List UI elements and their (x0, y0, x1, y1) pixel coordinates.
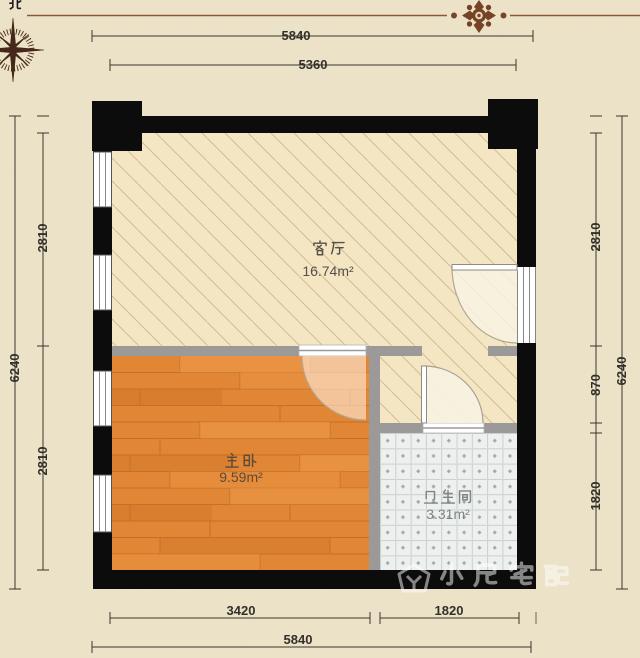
svg-text:3.31m²: 3.31m² (426, 506, 470, 522)
svg-text:9.59m²: 9.59m² (219, 469, 263, 485)
svg-text:3420: 3420 (227, 603, 256, 618)
svg-text:5840: 5840 (282, 28, 311, 43)
svg-text:2810: 2810 (35, 447, 50, 476)
svg-text:2810: 2810 (35, 224, 50, 253)
svg-text:870: 870 (588, 374, 603, 396)
svg-text:6240: 6240 (614, 357, 629, 386)
svg-text:2810: 2810 (588, 223, 603, 252)
svg-text:16.74m²: 16.74m² (302, 263, 354, 279)
svg-text:6240: 6240 (7, 354, 22, 383)
svg-text:1820: 1820 (588, 482, 603, 511)
svg-text:1820: 1820 (435, 603, 464, 618)
svg-text:5360: 5360 (299, 57, 328, 72)
svg-text:5840: 5840 (284, 632, 313, 647)
